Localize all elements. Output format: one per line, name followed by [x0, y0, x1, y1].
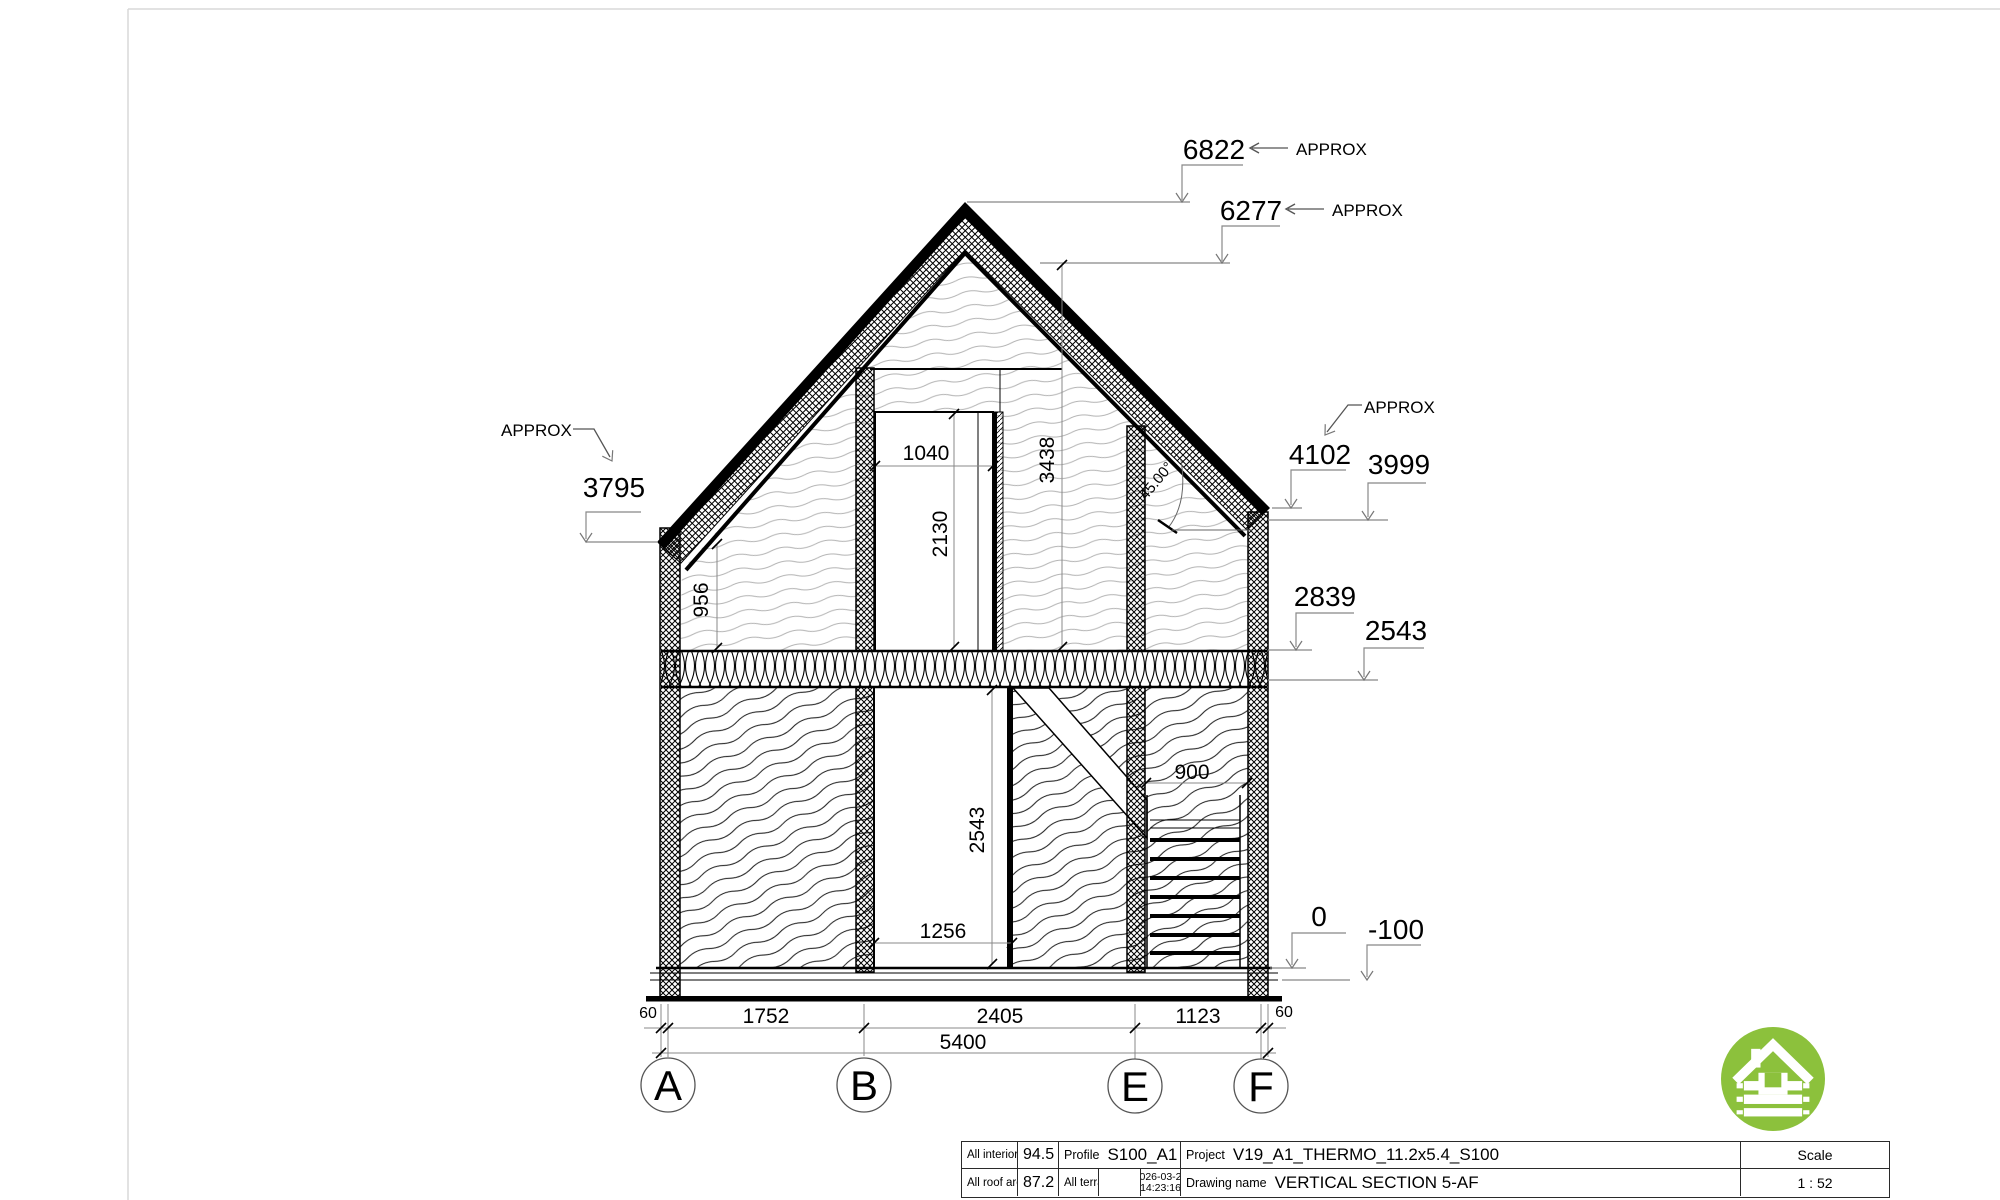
approx-label-top1: APPROX	[1296, 140, 1367, 159]
wall-right	[1248, 512, 1268, 997]
grid-label-f: F	[1248, 1063, 1274, 1110]
dim-label-60-left: 60	[639, 1005, 657, 1022]
grid-label-e: E	[1121, 1063, 1149, 1110]
project-label: Project	[1186, 1148, 1225, 1162]
scale-value-cell: 1 : 52	[1741, 1169, 1889, 1196]
dim-label-2405: 2405	[977, 1005, 1024, 1028]
title-block: All interior area 94.5 m2 Profile S100_A…	[961, 1141, 1890, 1198]
drawing-name-label: Drawing name	[1186, 1176, 1267, 1190]
drawing-name-cell: Drawing name VERTICAL SECTION 5-AF	[1181, 1169, 1741, 1196]
scale-value: 1 : 52	[1797, 1175, 1832, 1191]
level-label-4102: 4102	[1289, 439, 1351, 470]
drawing-sheet: 6822 APPROX 6277 APPROX APPROX 3795 APPR…	[0, 0, 2000, 1200]
interior-area-value: 94.5 m2	[1023, 1146, 1059, 1164]
dim-label-2543v: 2543	[966, 807, 989, 854]
dim-label-3438: 3438	[1036, 437, 1059, 484]
scale-label: Scale	[1797, 1147, 1832, 1163]
approx-label-left: APPROX	[501, 421, 572, 440]
level-label-0: 0	[1311, 901, 1327, 932]
drawing-name-value: VERTICAL SECTION 5-AF	[1275, 1173, 1479, 1193]
terrace-label: All terrace	[1064, 1177, 1099, 1189]
company-logo	[1721, 1027, 1825, 1131]
roof-area-value: 87.2 m2	[1023, 1174, 1059, 1192]
level-label-minus100: -100	[1368, 914, 1424, 945]
time-value: 14:23:16	[1141, 1183, 1181, 1194]
dim-label-1256: 1256	[920, 920, 967, 943]
wall-e-ground	[1127, 687, 1145, 972]
section-drawing: 6822 APPROX 6277 APPROX APPROX 3795 APPR…	[0, 0, 2000, 1200]
dim-label-60-right: 60	[1275, 1004, 1293, 1021]
dim-label-1040: 1040	[903, 442, 950, 465]
grid-label-b: B	[850, 1062, 878, 1109]
interior-area-label-cell: All interior area	[962, 1142, 1018, 1169]
terrace-label-cell: All terrace	[1059, 1169, 1099, 1196]
grid-bubbles	[641, 1058, 1288, 1113]
roof-area-label: All roof area	[967, 1177, 1018, 1189]
date-value: 2026-03-20	[1141, 1172, 1181, 1183]
scale-label-cell: Scale	[1741, 1142, 1889, 1169]
dim-label-900: 900	[1174, 761, 1209, 784]
floor-band	[661, 651, 1267, 687]
dim-label-1123: 1123	[1175, 1005, 1220, 1028]
dim-label-5400: 5400	[940, 1031, 987, 1054]
wall-b-ground	[856, 687, 874, 972]
level-label-3795: 3795	[583, 472, 645, 503]
terrace-value-cell	[1099, 1169, 1141, 1196]
datetime-cell: 2026-03-20 14:23:16	[1141, 1169, 1181, 1196]
dim-label-2130: 2130	[929, 511, 952, 558]
level-label-6822: 6822	[1183, 134, 1245, 165]
wall-b-attic	[856, 368, 874, 651]
level-label-6277: 6277	[1220, 195, 1282, 226]
project-value: V19_A1_THERMO_11.2x5.4_S100	[1233, 1145, 1499, 1165]
level-label-3999: 3999	[1368, 449, 1430, 480]
dim-label-956: 956	[690, 582, 713, 617]
logo-house-icon	[1721, 1027, 1825, 1131]
level-label-2543: 2543	[1365, 615, 1427, 646]
roof-area-label-cell: All roof area	[962, 1169, 1018, 1196]
foundation	[646, 968, 1350, 1002]
interior-area-value-cell: 94.5 m2	[1018, 1142, 1059, 1169]
wall-left	[660, 528, 680, 997]
roof-area-value-cell: 87.2 m2	[1018, 1169, 1059, 1196]
grid-label-a: A	[654, 1062, 682, 1109]
profile-value: S100_A1	[1107, 1145, 1177, 1165]
approx-label-right: APPROX	[1364, 398, 1435, 417]
level-label-2839: 2839	[1294, 581, 1356, 612]
wall-e-attic	[1127, 426, 1145, 651]
profile-label: Profile	[1064, 1148, 1099, 1162]
dim-label-1752: 1752	[743, 1005, 790, 1028]
interior-area-label: All interior area	[967, 1149, 1018, 1161]
profile-cell: Profile S100_A1	[1059, 1142, 1181, 1169]
approx-label-top2: APPROX	[1332, 201, 1403, 220]
project-cell: Project V19_A1_THERMO_11.2x5.4_S100	[1181, 1142, 1741, 1169]
ground-door-right	[1007, 687, 1013, 968]
